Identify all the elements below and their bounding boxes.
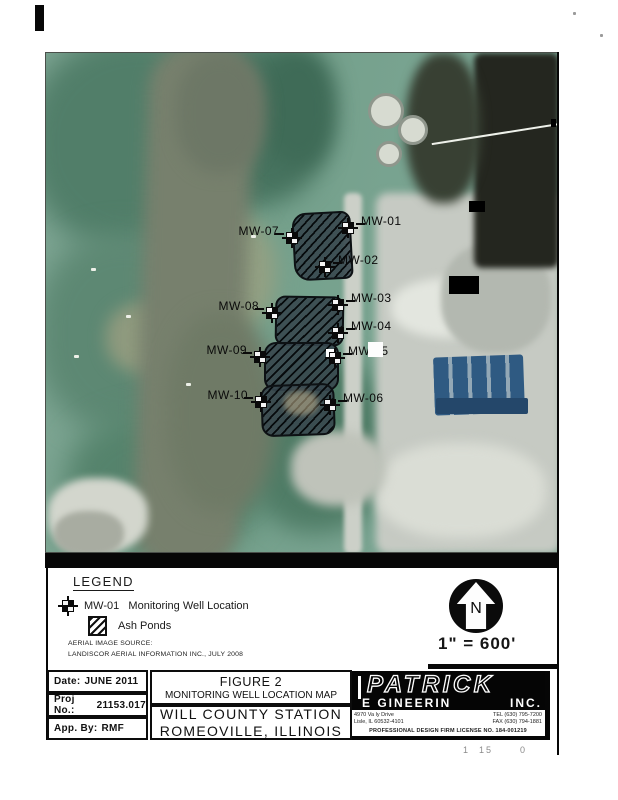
well-symbol — [328, 323, 348, 343]
firm-address-left: 4970 Va ly Drive Lisle, IL 60532-4101 — [354, 712, 404, 727]
well-symbol — [251, 392, 271, 412]
station-name: WILL COUNTY STATION — [160, 706, 342, 722]
date-cell: Date: JUNE 2011 — [47, 670, 148, 693]
station-cell: WILL COUNTY STATION ROMEOVILLE, ILLINOIS — [150, 705, 352, 740]
title-block: Date: JUNE 2011 Proj No.: 21153.017 App.… — [47, 670, 550, 740]
firm-license: PROFESSIONAL DESIGN FIRM LICENSE NO. 184… — [354, 728, 542, 735]
aerial-source-line1: AERIAL IMAGE SOURCE: — [68, 639, 243, 650]
storage-tank — [398, 115, 428, 145]
plant-buildings-blue — [436, 398, 528, 414]
firm-right-band — [545, 671, 550, 740]
firm-tel: TEL (630) 795-7200 — [492, 712, 542, 719]
figure-number: FIGURE 2 — [220, 675, 282, 689]
well-label: MW-02 — [338, 253, 378, 267]
well-label: MW-06 — [343, 391, 383, 405]
ash-pond-hatch-icon — [88, 616, 107, 636]
firm-address: 4970 Va ly Drive Lisle, IL 60532-4101 TE… — [354, 712, 542, 735]
storage-tank — [376, 141, 402, 167]
figure-right-border — [557, 52, 559, 755]
industrial-area — [376, 443, 546, 538]
scan-speck — [573, 12, 576, 15]
firm-addr1: 4970 Va ly Drive — [354, 712, 404, 719]
well-label: MW-07 — [239, 224, 279, 238]
cleared-ground — [291, 431, 386, 506]
well-symbol — [338, 218, 358, 238]
firm-name3: INC. — [510, 696, 542, 710]
photo-bottom-bar — [45, 553, 558, 568]
firm-fax: FAX (630) 794-1881 — [492, 719, 542, 726]
well-label: MW-03 — [351, 291, 391, 305]
well-symbol — [250, 347, 270, 367]
tower-speck — [186, 383, 191, 386]
well-symbol — [282, 228, 302, 248]
legend-well-id: MW-01 — [84, 600, 119, 612]
well-label: MW-09 — [207, 343, 247, 357]
well-label: MW-08 — [219, 299, 259, 313]
well-symbol — [262, 303, 282, 323]
firm-banner-bar — [358, 676, 361, 699]
north-arrow: N — [449, 579, 503, 633]
legend-well-entry: MW-01 Monitoring Well Location — [84, 600, 249, 612]
tower-speck — [91, 268, 96, 271]
scale-text: 1" = 600' — [438, 634, 516, 654]
tower-speck — [74, 355, 79, 358]
scan-black-mark — [551, 119, 556, 127]
gravel-lot — [54, 511, 124, 553]
scan-white-blot — [368, 342, 383, 357]
aerial-source-note: AERIAL IMAGE SOURCE: LANDISCOR AERIAL IN… — [68, 639, 243, 660]
scan-artifact-bar — [35, 5, 44, 31]
firm-name: PATRICK — [367, 671, 495, 699]
well-symbol — [328, 295, 348, 315]
app-cell: App. By: RMF — [47, 717, 148, 740]
well-label: MW-10 — [208, 388, 248, 402]
date-value: JUNE 2011 — [85, 676, 139, 687]
well-symbol — [320, 395, 340, 415]
proj-value: 21153.017 — [97, 700, 146, 711]
firm-banner: PATRICK E GINEERIN INC. — [352, 671, 550, 710]
figure-title: MONITORING WELL LOCATION MAP — [165, 690, 337, 701]
app-value: RMF — [102, 723, 125, 734]
figure-cell: FIGURE 2 MONITORING WELL LOCATION MAP — [150, 670, 352, 705]
firm-bottom-band — [352, 736, 550, 740]
well-label: MW-04 — [351, 319, 391, 333]
scan-dash — [428, 664, 558, 669]
forest-area — [261, 52, 336, 168]
north-arrow-label: N — [449, 600, 503, 618]
firm-name2: E GINEERIN — [362, 696, 451, 710]
scanned-figure-page: MW-01 MW-07 MW-02 MW-03 MW-08 MW-04 — [0, 0, 618, 800]
well-symbol-icon — [58, 596, 78, 616]
well-symbol — [315, 257, 335, 277]
station-location: ROMEOVILLE, ILLINOIS — [160, 723, 342, 739]
coal-pile — [474, 53, 558, 268]
ash-pond-light-patch — [284, 391, 318, 415]
scan-black-mark — [469, 201, 485, 212]
date-label: Date: — [54, 676, 81, 687]
tower-speck — [126, 315, 131, 318]
firm-name-line2: E GINEERIN INC. — [362, 696, 542, 710]
legend-title: LEGEND — [73, 574, 134, 591]
aerial-source-line2: LANDISCOR AERIAL INFORMATION INC., JULY … — [68, 650, 243, 661]
aerial-photo: MW-01 MW-07 MW-02 MW-03 MW-08 MW-04 — [45, 52, 558, 553]
well-symbol — [325, 348, 345, 368]
firm-address-right: TEL (630) 795-7200 FAX (630) 794-1881 — [492, 712, 542, 727]
well-label: MW-01 — [361, 214, 401, 228]
app-label: App. By: — [54, 723, 98, 734]
scan-speck — [600, 34, 603, 37]
legend-well-text: Monitoring Well Location — [128, 600, 248, 612]
fax-stamp: 1 15 0 — [463, 745, 527, 755]
legend-ash-entry: Ash Ponds — [118, 620, 171, 632]
river-channel — [176, 53, 266, 173]
proj-cell: Proj No.: 21153.017 — [47, 693, 148, 717]
firm-addr2: Lisle, IL 60532-4101 — [354, 719, 404, 726]
scan-black-mark — [449, 276, 479, 294]
firm-block: PATRICK E GINEERIN INC. 4970 Va ly Drive… — [352, 670, 550, 740]
proj-label: Proj No.: — [54, 694, 93, 716]
